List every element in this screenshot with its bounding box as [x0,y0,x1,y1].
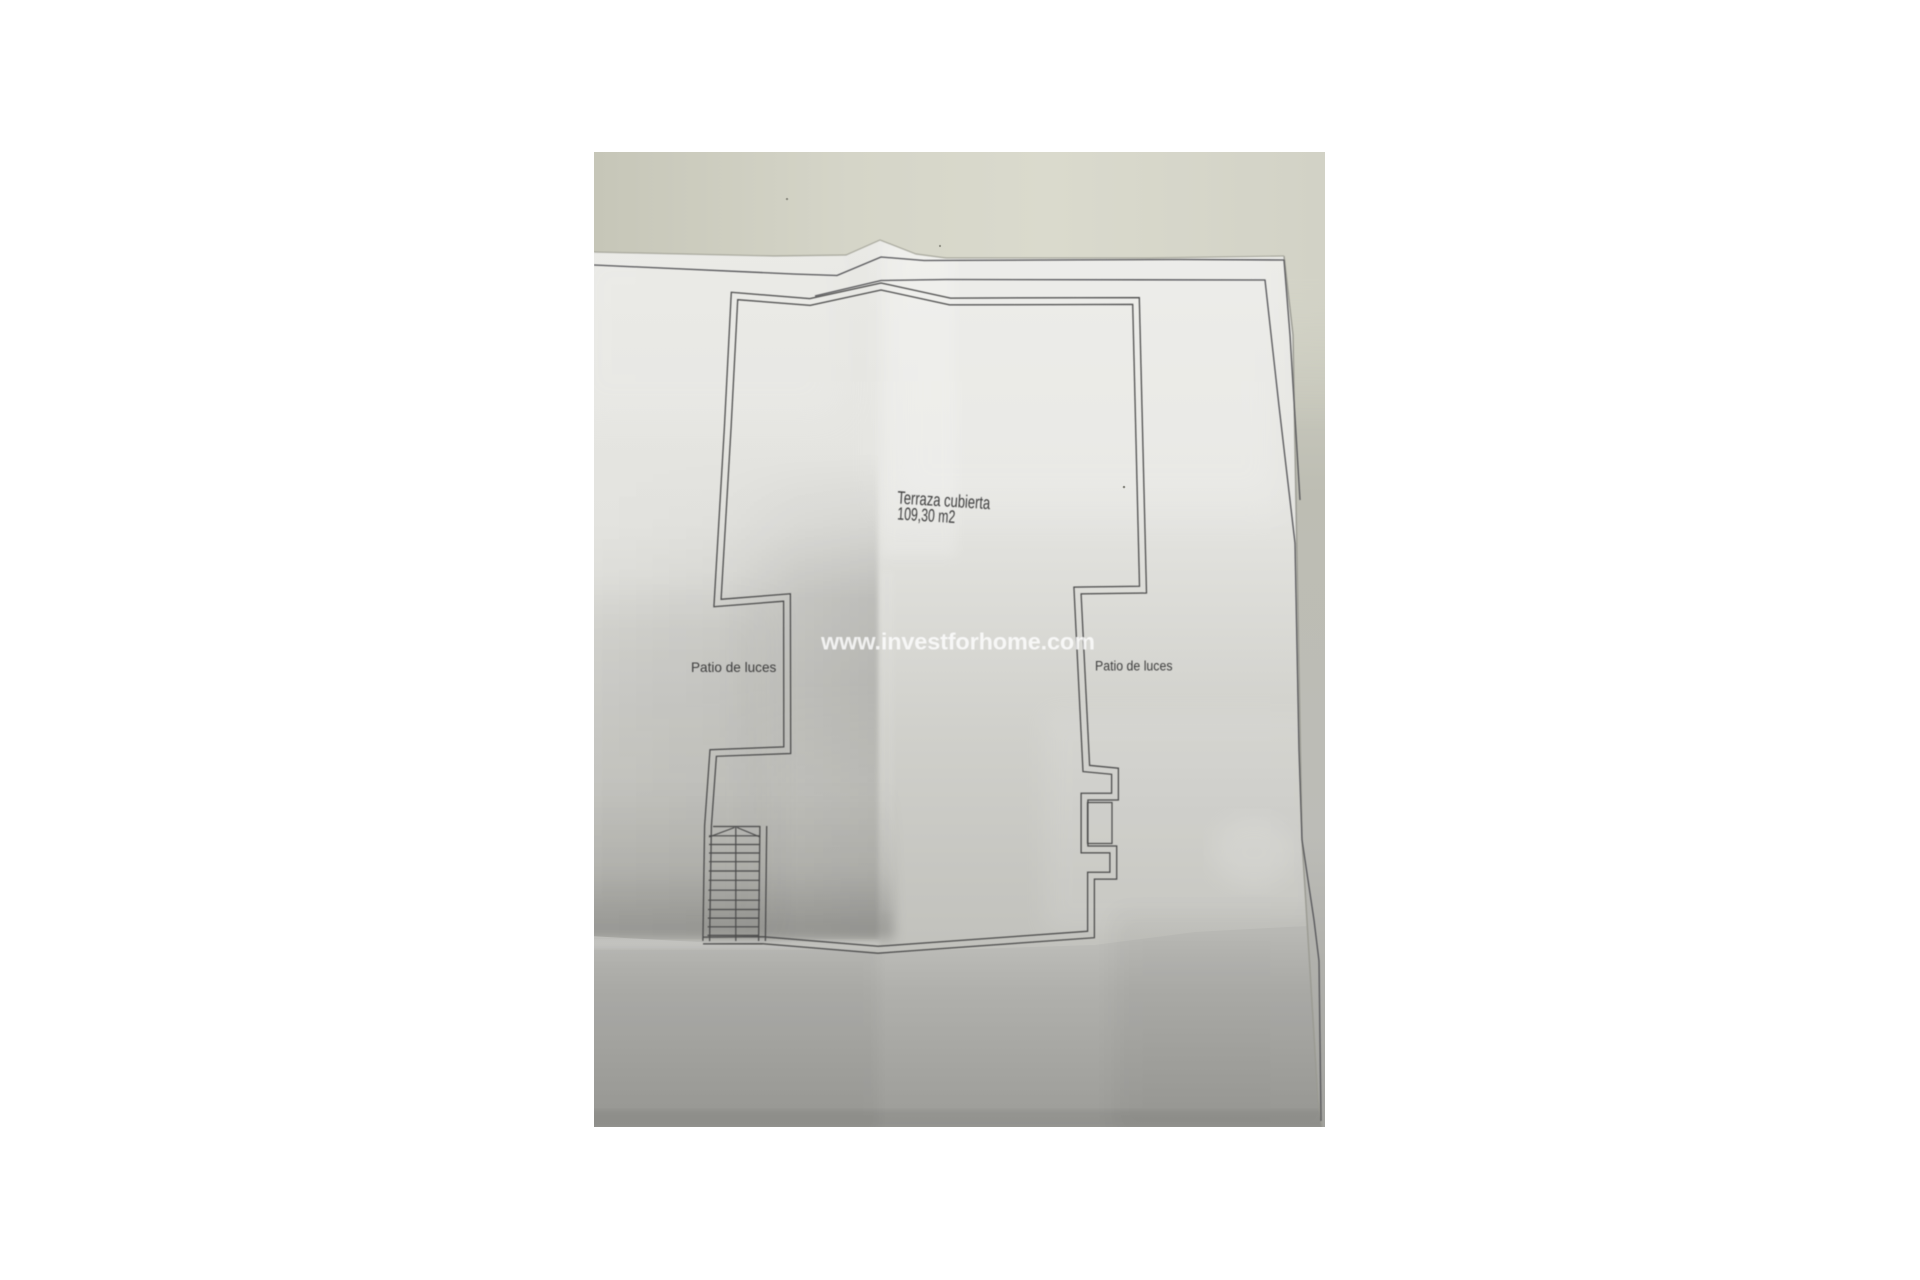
svg-text:Patio de luces: Patio de luces [1095,659,1173,674]
svg-text:Patio de luces: Patio de luces [691,659,776,675]
svg-text:www.investforhome.com: www.investforhome.com [820,628,1095,654]
svg-text:109,30 m2: 109,30 m2 [897,504,956,528]
